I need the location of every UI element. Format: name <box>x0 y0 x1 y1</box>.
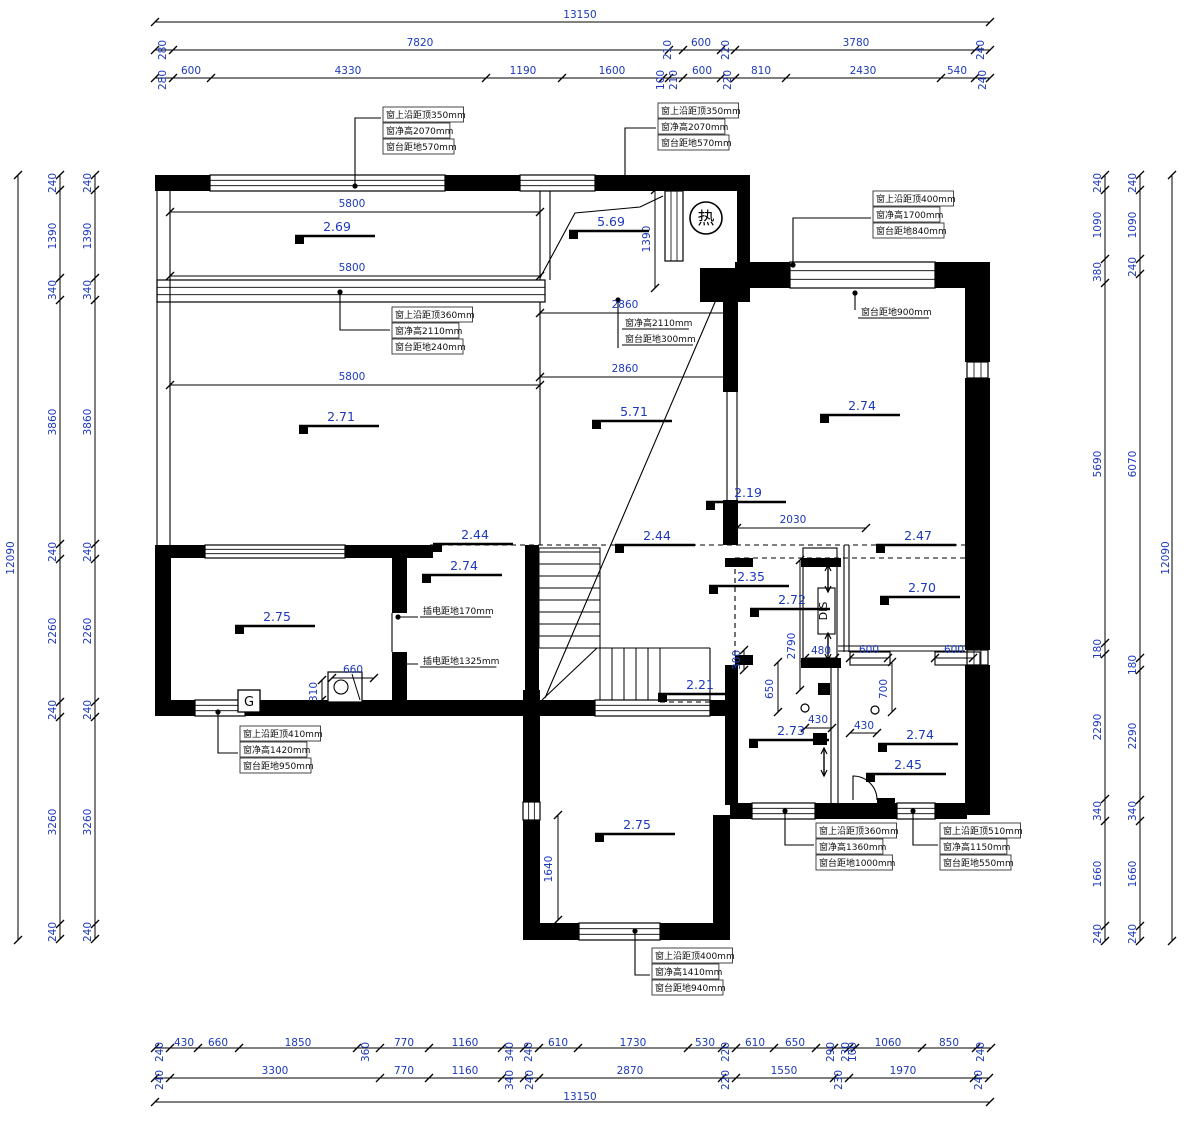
dimension-label: 480 <box>811 645 831 657</box>
svg-text:窗净高1420mm: 窗净高1420mm <box>243 744 310 756</box>
svg-text:窗上沿距顶350mm: 窗上沿距顶350mm <box>386 109 466 121</box>
dimension-label: 6070 <box>1127 451 1139 478</box>
gas-symbol: G <box>244 695 254 710</box>
dimension-label: 180 <box>1127 655 1139 675</box>
svg-text:窗台距地840mm: 窗台距地840mm <box>876 225 947 237</box>
dimension-label: 340 <box>1127 801 1139 821</box>
dimension-label: 530 <box>695 1037 715 1049</box>
window <box>520 175 595 191</box>
dashed-lines <box>430 480 965 702</box>
dimension-label: 5800 <box>339 262 366 274</box>
level-marker: 2.47 <box>876 528 956 553</box>
level-marker: 2.44 <box>615 528 695 553</box>
wall <box>723 302 738 392</box>
dimension-chain <box>1101 171 1109 945</box>
svg-text:窗上沿距顶350mm: 窗上沿距顶350mm <box>661 105 741 117</box>
svg-text:5.69: 5.69 <box>597 214 625 229</box>
dimension-label: 1640 <box>543 856 555 883</box>
dimension-label: 430 <box>854 720 874 732</box>
wall <box>245 700 527 716</box>
window-note: 窗上沿距顶350mm窗净高2070mm窗台距地570mm <box>658 103 741 150</box>
dimension-label: 430 <box>808 714 828 726</box>
dimension-label: 600 <box>859 644 879 656</box>
leader-line <box>793 218 871 265</box>
dimension-label: 600 <box>692 65 712 77</box>
wall <box>713 815 730 925</box>
dimension-label: 3780 <box>843 37 870 49</box>
water-heater-symbol: 热 <box>698 209 715 229</box>
dimension-label: 430 <box>174 1037 194 1049</box>
svg-text:2.74: 2.74 <box>450 558 478 573</box>
wall <box>392 652 407 700</box>
drain-point <box>871 706 879 714</box>
dimension-label: 650 <box>764 679 776 699</box>
window-note: 窗上沿距顶350mm窗净高2070mm窗台距地570mm <box>383 107 466 154</box>
dimension-label: 240 <box>47 173 59 193</box>
window-note: 窗上沿距顶360mm窗净高2110mm窗台距地240mm <box>392 307 475 354</box>
dimension-label: 850 <box>939 1037 959 1049</box>
dimension-label: 210 <box>662 40 674 60</box>
svg-text:2.75: 2.75 <box>623 817 651 832</box>
floor-plan-drawing: 1315028078202106002203780240280600433011… <box>0 0 1200 1121</box>
wall <box>965 665 990 815</box>
svg-text:2.19: 2.19 <box>734 485 762 500</box>
dimension-label: 5800 <box>339 198 366 210</box>
dimension-label: 280 <box>157 70 169 90</box>
wall <box>723 500 738 545</box>
wall <box>735 262 790 288</box>
dimension-label: 240 <box>1092 173 1104 193</box>
dimension-label: 2870 <box>617 1065 644 1077</box>
dimension-label: 1970 <box>890 1065 917 1077</box>
wall <box>345 545 433 558</box>
svg-text:2.75: 2.75 <box>263 609 291 624</box>
dis-shaft-label: DIS <box>817 602 830 621</box>
dimension-label: 1160 <box>452 1065 479 1077</box>
dimension-label: 1850 <box>285 1037 312 1049</box>
svg-text:2.70: 2.70 <box>908 580 936 595</box>
dimension-label: 600 <box>944 644 964 656</box>
dimension-label: 240 <box>1127 257 1139 277</box>
wall <box>935 262 990 288</box>
svg-text:2.71: 2.71 <box>327 409 355 424</box>
svg-text:窗上沿距顶400mm: 窗上沿距顶400mm <box>655 950 735 962</box>
dimension-label: 240 <box>47 700 59 720</box>
dimension-label: 810 <box>751 65 771 77</box>
wall <box>877 798 895 806</box>
dimension-label: 1660 <box>1127 861 1139 888</box>
dimension-label: 1060 <box>875 1037 902 1049</box>
svg-text:2.74: 2.74 <box>848 398 876 413</box>
dimension-label: 4330 <box>335 65 362 77</box>
wall <box>155 700 195 716</box>
dimension-label: 13150 <box>563 1091 596 1103</box>
wall <box>523 923 579 940</box>
dimension-label: 240 <box>977 70 989 90</box>
dimension-label: 340 <box>504 1042 516 1062</box>
wall <box>730 803 752 819</box>
wall <box>725 558 753 567</box>
dimension-label: 240 <box>82 173 94 193</box>
dimension-label: 3860 <box>82 409 94 436</box>
window <box>967 362 988 378</box>
svg-text:窗台距地570mm: 窗台距地570mm <box>386 141 457 153</box>
window-note: 窗上沿距顶360mm窗净高1360mm窗台距地1000mm <box>816 823 899 870</box>
svg-text:窗台距地570mm: 窗台距地570mm <box>661 137 732 149</box>
svg-text:窗台距地900mm: 窗台距地900mm <box>861 306 932 318</box>
level-marker: 2.45 <box>866 757 946 782</box>
drain-point <box>801 704 809 712</box>
svg-text:2.44: 2.44 <box>643 528 671 543</box>
svg-text:窗上沿距顶510mm: 窗上沿距顶510mm <box>943 825 1023 837</box>
window-note: 插电距地170mm <box>420 605 494 617</box>
dimension-label: 1660 <box>1092 861 1104 888</box>
wall <box>535 700 595 716</box>
level-marker: 5.69 <box>569 214 649 239</box>
dimension-label: 1090 <box>1092 212 1104 239</box>
svg-text:窗净高2110mm: 窗净高2110mm <box>395 325 462 337</box>
dimension-label: 240 <box>975 40 987 60</box>
dimension-label: 650 <box>785 1037 805 1049</box>
dimension-label: 12090 <box>5 541 17 574</box>
dimension-label: 610 <box>548 1037 568 1049</box>
window <box>210 175 445 191</box>
svg-text:窗净高2070mm: 窗净高2070mm <box>661 121 728 133</box>
dimension-label: 380 <box>1092 262 1104 282</box>
wall <box>965 378 990 650</box>
level-marker: 2.74 <box>422 558 502 583</box>
level-marker: 2.75 <box>235 609 315 634</box>
svg-text:2.74: 2.74 <box>906 727 934 742</box>
level-marker: 2.75 <box>595 817 675 842</box>
dimension-label: 220 <box>720 40 732 60</box>
dimension-chain <box>554 811 562 924</box>
dimension-label: 240 <box>82 922 94 942</box>
dimension-label: 240 <box>82 700 94 720</box>
level-marker: 2.69 <box>295 219 375 244</box>
wall <box>935 803 967 819</box>
svg-text:2.72: 2.72 <box>778 592 806 607</box>
dimension-label: 240 <box>47 922 59 942</box>
svg-text:2.73: 2.73 <box>777 723 805 738</box>
dimension-label: 770 <box>394 1037 414 1049</box>
svg-text:窗上沿距顶410mm: 窗上沿距顶410mm <box>243 728 323 740</box>
dimension-chain <box>1136 171 1144 945</box>
window <box>665 191 683 261</box>
dimension-label: 2790 <box>786 633 798 660</box>
level-marker: 5.71 <box>592 404 672 429</box>
dimension-label: 540 <box>947 65 967 77</box>
dimension-label: 340 <box>504 1070 516 1090</box>
wall <box>170 545 205 558</box>
level-marker: 2.35 <box>709 569 789 594</box>
dimension-label: 300 <box>731 650 743 670</box>
wall <box>965 288 990 362</box>
dimension-label: 1600 <box>599 65 626 77</box>
svg-text:窗净高1150mm: 窗净高1150mm <box>943 841 1010 853</box>
dimension-label: 340 <box>47 280 59 300</box>
svg-text:插电距地170mm: 插电距地170mm <box>423 605 494 617</box>
dimension-label: 240 <box>1127 924 1139 944</box>
dimension-label: 240 <box>47 542 59 562</box>
dimension-label: 1390 <box>82 223 94 250</box>
svg-text:窗台距地300mm: 窗台距地300mm <box>625 333 696 345</box>
svg-text:2.21: 2.21 <box>686 677 714 692</box>
dimension-label: 180 <box>1092 639 1104 659</box>
dimension-label: 290 <box>825 1042 837 1062</box>
svg-text:窗净高2110mm: 窗净高2110mm <box>625 317 692 329</box>
dimension-chain <box>151 1044 995 1052</box>
dimension-label: 2430 <box>850 65 877 77</box>
svg-text:窗上沿距顶400mm: 窗上沿距顶400mm <box>876 193 956 205</box>
svg-text:窗台距地550mm: 窗台距地550mm <box>943 857 1014 869</box>
dimension-label: 240 <box>523 1042 535 1062</box>
dimension-label: 12090 <box>1160 541 1172 574</box>
dimension-label: 1190 <box>510 65 537 77</box>
dimension-label: 220 <box>722 70 734 90</box>
dimension-label: 610 <box>745 1037 765 1049</box>
svg-text:2.47: 2.47 <box>904 528 932 543</box>
window-note: 窗上沿距顶410mm窗净高1420mm窗台距地950mm <box>240 726 323 773</box>
window <box>579 923 660 940</box>
svg-text:窗上沿距顶360mm: 窗上沿距顶360mm <box>395 309 475 321</box>
window-note: 窗上沿距顶400mm窗净高1700mm窗台距地840mm <box>873 191 956 238</box>
dimension-label: 2260 <box>82 618 94 645</box>
svg-text:2.35: 2.35 <box>737 569 765 584</box>
dimension-label: 2030 <box>780 514 807 526</box>
window <box>523 802 540 820</box>
dimension-label: 13150 <box>563 9 596 21</box>
dimension-label: 240 <box>154 1070 166 1090</box>
wall <box>801 558 841 567</box>
window-note: 窗上沿距顶510mm窗净高1150mm窗台距地550mm <box>940 823 1023 870</box>
wall <box>660 923 730 940</box>
window-note: 窗净高2110mm窗台距地300mm <box>622 317 696 345</box>
wall <box>392 558 407 613</box>
dimension-label: 600 <box>181 65 201 77</box>
dimension-label: 2260 <box>47 618 59 645</box>
dimension-label: 240 <box>82 542 94 562</box>
dimension-label: 3260 <box>82 809 94 836</box>
window <box>897 803 935 819</box>
dimension-label: 1160 <box>452 1037 479 1049</box>
svg-text:窗上沿距顶360mm: 窗上沿距顶360mm <box>819 825 899 837</box>
dimension-label: 220 <box>720 1042 732 1062</box>
dimension-label: 100 <box>847 1042 859 1062</box>
dimension-label: 210 <box>668 70 680 90</box>
dimension-label: 240 <box>973 1070 985 1090</box>
level-marker: 2.74 <box>820 398 900 423</box>
wall <box>818 683 830 695</box>
dimension-label: 2290 <box>1127 723 1139 750</box>
window-note: 窗台距地900mm <box>858 306 932 318</box>
dimension-label: 700 <box>878 679 890 699</box>
dimension-label: 230 <box>833 1070 845 1090</box>
wall <box>595 175 750 191</box>
dimension-label: 360 <box>360 1042 372 1062</box>
dimension-label: 3300 <box>262 1065 289 1077</box>
dimension-label: 1550 <box>771 1065 798 1077</box>
svg-text:窗净高1410mm: 窗净高1410mm <box>655 966 722 978</box>
svg-text:2.44: 2.44 <box>461 527 489 542</box>
wall <box>155 545 171 716</box>
level-marker: 2.19 <box>706 485 786 510</box>
level-marker: 2.74 <box>878 727 958 752</box>
svg-text:窗台距地940mm: 窗台距地940mm <box>655 982 726 994</box>
dimension-label: 280 <box>157 40 169 60</box>
window-note: 窗上沿距顶400mm窗净高1410mm窗台距地940mm <box>652 948 735 995</box>
dimension-label: 220 <box>720 1070 732 1090</box>
window <box>595 700 710 716</box>
wall <box>737 191 750 271</box>
window <box>790 262 935 288</box>
window <box>157 280 545 302</box>
svg-text:窗净高2070mm: 窗净高2070mm <box>386 125 453 137</box>
svg-text:插电距地1325mm: 插电距地1325mm <box>423 655 499 667</box>
dimension-label: 660 <box>343 664 363 676</box>
dimension-label: 310 <box>308 682 320 702</box>
window-note: 插电距地1325mm <box>420 655 499 667</box>
dimension-label: 340 <box>1092 801 1104 821</box>
level-marker: 2.44 <box>433 527 513 552</box>
dimension-label: 660 <box>208 1037 228 1049</box>
dimension-label: 2290 <box>1092 714 1104 741</box>
dimension-label: 1390 <box>47 223 59 250</box>
dimension-label: 240 <box>154 1042 166 1062</box>
dimension-label: 2860 <box>612 299 639 311</box>
dimension-label: 100 <box>655 70 667 90</box>
wall <box>523 820 540 924</box>
dimension-label: 340 <box>82 280 94 300</box>
dimension-label: 1090 <box>1127 212 1139 239</box>
svg-text:窗净高1700mm: 窗净高1700mm <box>876 209 943 221</box>
dimension-label: 770 <box>394 1065 414 1077</box>
svg-text:5.71: 5.71 <box>620 404 648 419</box>
level-marker: 2.71 <box>299 409 379 434</box>
svg-text:窗台距地240mm: 窗台距地240mm <box>395 341 466 353</box>
leader-line <box>218 712 238 753</box>
dimension-label: 7820 <box>407 37 434 49</box>
dimension-label: 5690 <box>1092 451 1104 478</box>
dimension-label: 1730 <box>620 1037 647 1049</box>
dimension-label: 2860 <box>612 363 639 375</box>
wall <box>445 175 520 191</box>
svg-text:2.45: 2.45 <box>894 757 922 772</box>
dimension-label: 5800 <box>339 371 366 383</box>
wall <box>725 665 738 805</box>
svg-text:窗净高1360mm: 窗净高1360mm <box>819 841 886 853</box>
staircase <box>539 548 660 700</box>
dimension-label: 3260 <box>47 809 59 836</box>
wall <box>523 690 540 802</box>
dimension-label: 600 <box>691 37 711 49</box>
dimension-label: 240 <box>524 1070 536 1090</box>
svg-text:窗台距地950mm: 窗台距地950mm <box>243 760 314 772</box>
svg-text:窗台距地1000mm: 窗台距地1000mm <box>819 857 895 869</box>
dimension-label: 3860 <box>47 409 59 436</box>
svg-text:2.69: 2.69 <box>323 219 351 234</box>
window <box>205 545 345 558</box>
dimension-label: 240 <box>1092 924 1104 944</box>
dimension-label: 240 <box>975 1042 987 1062</box>
floor-plan-page: 1315028078202106002203780240280600433011… <box>0 0 1200 1121</box>
level-marker: 2.70 <box>880 580 960 605</box>
dimension-label: 240 <box>1127 173 1139 193</box>
wall <box>155 175 210 191</box>
dimension-label: 1390 <box>641 226 653 253</box>
